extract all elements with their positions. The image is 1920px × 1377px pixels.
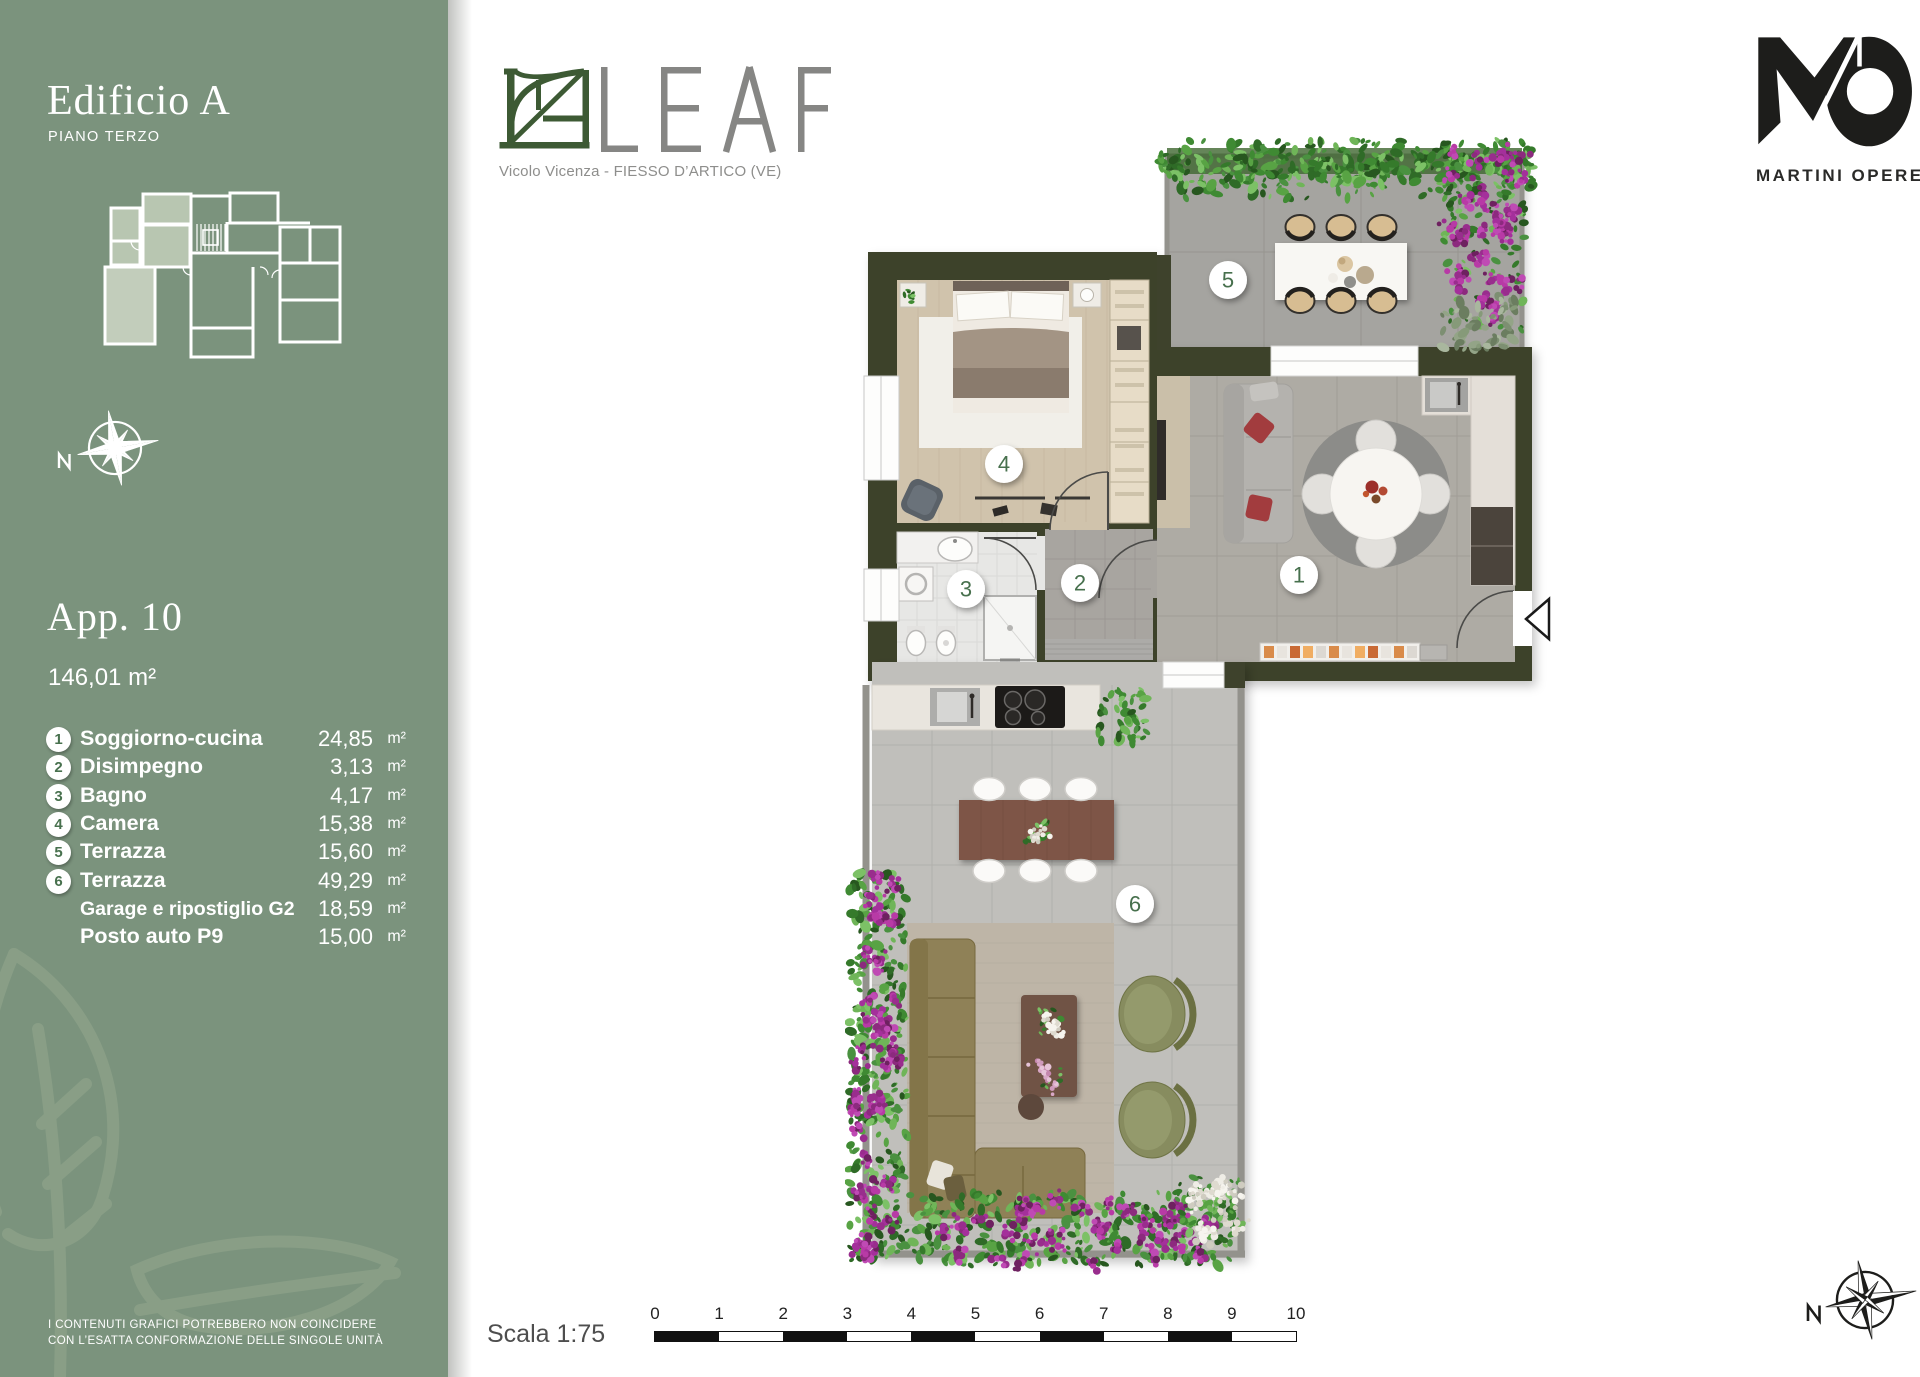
svg-text:4: 4 — [998, 452, 1010, 477]
svg-text:3: 3 — [960, 577, 972, 602]
svg-text:1: 1 — [1293, 563, 1305, 588]
svg-text:6: 6 — [1129, 892, 1141, 917]
svg-text:5: 5 — [1222, 268, 1234, 293]
svg-text:2: 2 — [1074, 571, 1086, 596]
